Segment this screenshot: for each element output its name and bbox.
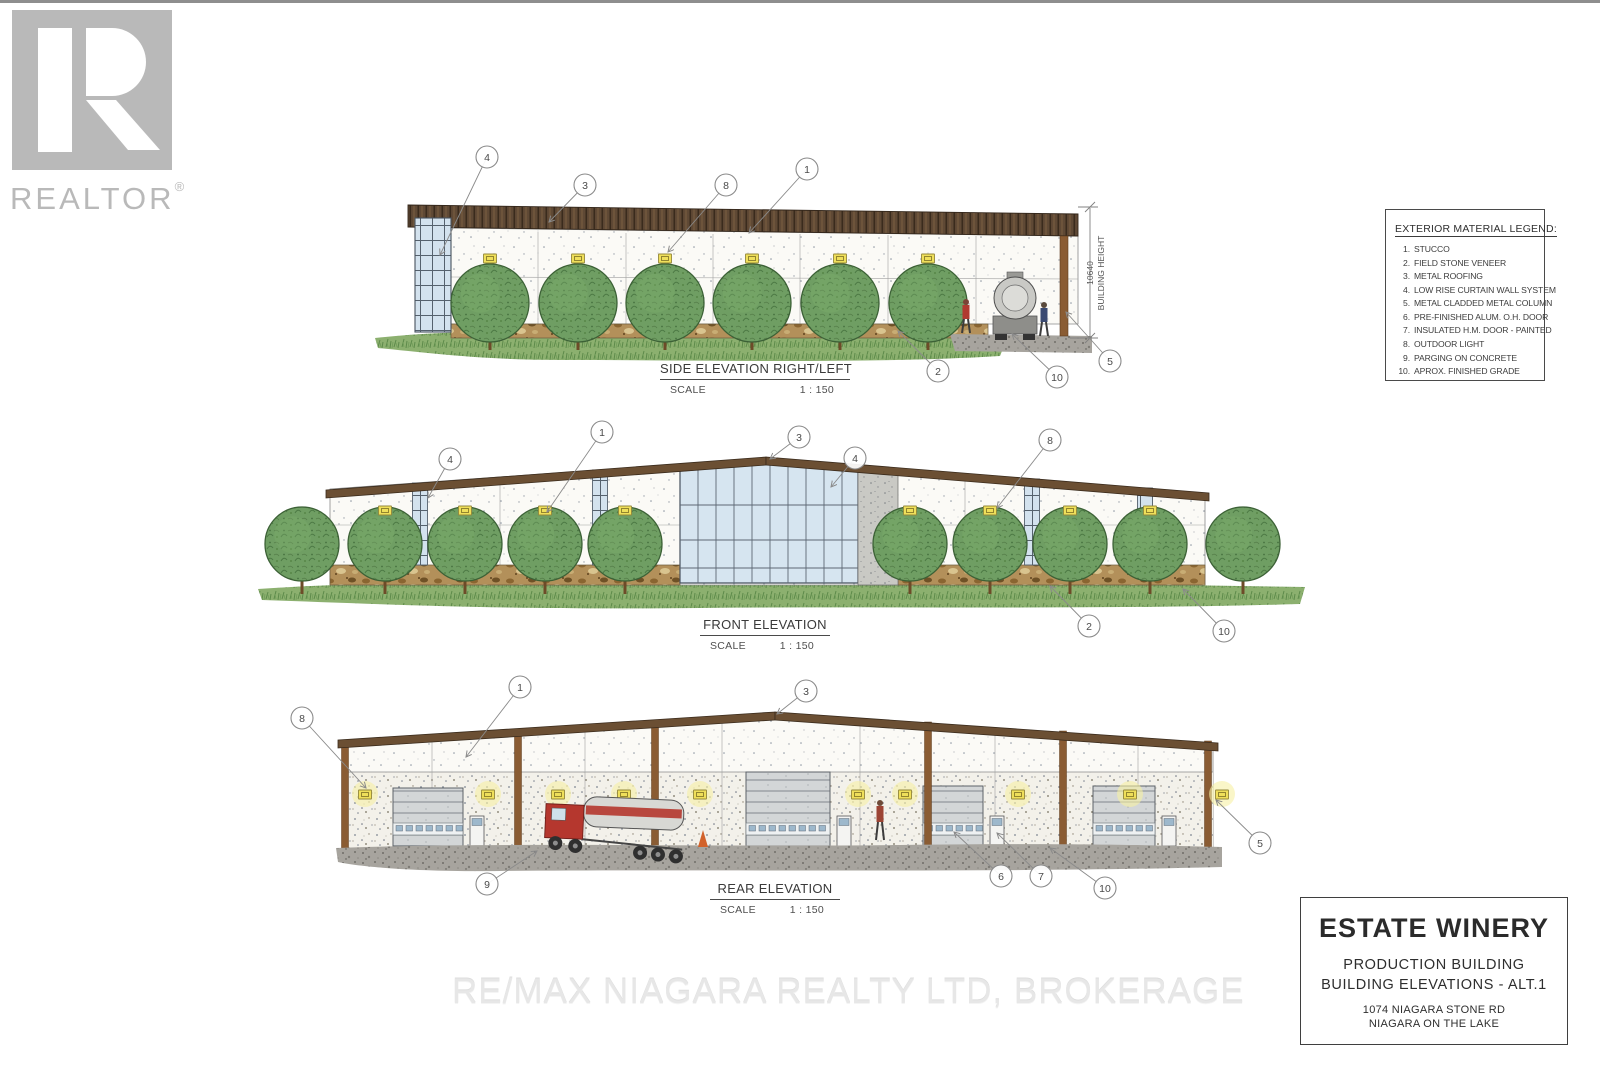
outdoor-light	[539, 506, 552, 515]
front-elevation-drawing: 41348210	[258, 421, 1305, 642]
svg-text:10: 10	[1218, 626, 1230, 638]
rear-elevation-title: REAR ELEVATION	[710, 881, 840, 900]
legend-items: 1.STUCCO2.FIELD STONE VENEER3.METAL ROOF…	[1395, 243, 1537, 379]
scale-value: 1 : 150	[780, 640, 814, 652]
front-elevation-caption: FRONT ELEVATION SCALE 1 : 150	[700, 617, 830, 652]
legend-item-label: PARGING ON CONCRETE	[1414, 352, 1517, 366]
hm-door	[837, 816, 851, 846]
legend-item-label: STUCCO	[1414, 243, 1450, 257]
outdoor-light	[746, 254, 759, 263]
outdoor-light	[619, 506, 632, 515]
svg-text:2: 2	[935, 366, 941, 378]
outdoor-light	[1209, 781, 1235, 807]
curtain-wall-center	[680, 464, 858, 583]
front-elevation-title: FRONT ELEVATION	[700, 617, 830, 636]
legend-item: 10.APROX. FINISHED GRADE	[1395, 365, 1537, 379]
scale-value: 1 : 150	[790, 904, 824, 916]
realtor-wordmark: REALTOR®	[10, 179, 210, 217]
svg-text:6: 6	[998, 871, 1004, 883]
svg-text:10: 10	[1099, 883, 1111, 895]
outdoor-light	[379, 506, 392, 515]
svg-text:9: 9	[484, 879, 490, 891]
legend-item-number: 2.	[1395, 257, 1410, 271]
legend-item-label: INSULATED H.M. DOOR - PAINTED	[1414, 324, 1552, 338]
svg-text:8: 8	[723, 180, 729, 192]
realtor-r-mark	[10, 8, 174, 172]
outdoor-light	[904, 506, 917, 515]
outdoor-light	[475, 781, 501, 807]
callout-3: 3	[770, 426, 810, 459]
rear-elevation-drawing: 813967105	[291, 676, 1271, 899]
legend-item-label: METAL ROOFING	[1414, 270, 1483, 284]
legend-item: 4.LOW RISE CURTAIN WALL SYSTEM	[1395, 284, 1537, 298]
legend-item: 8.OUTDOOR LIGHT	[1395, 338, 1537, 352]
legend-item-number: 5.	[1395, 297, 1410, 311]
outdoor-light	[572, 254, 585, 263]
sheet-subtitle-2: BUILDING ELEVATIONS - ALT.1	[1301, 977, 1567, 993]
side-elevation-title: SIDE ELEVATION RIGHT/LEFT	[660, 361, 850, 380]
outdoor-light	[1005, 781, 1031, 807]
rear-elevation-caption: REAR ELEVATION SCALE 1 : 150	[710, 881, 840, 916]
side-elevation-drawing: 10640 BUILDING HEIGHT 43812105	[375, 146, 1121, 388]
outdoor-light	[659, 254, 672, 263]
legend-item: 7.INSULATED H.M. DOOR - PAINTED	[1395, 324, 1537, 338]
legend-item-number: 6.	[1395, 311, 1410, 325]
legend-item-label: METAL CLADDED METAL COLUMN	[1414, 297, 1552, 311]
legend-item-label: APROX. FINISHED GRADE	[1414, 365, 1520, 379]
outdoor-light	[687, 781, 713, 807]
outdoor-light	[984, 506, 997, 515]
svg-text:8: 8	[1047, 435, 1053, 447]
realtor-logo: REALTOR®	[10, 8, 210, 217]
legend-item: 1.STUCCO	[1395, 243, 1537, 257]
hm-door	[470, 816, 484, 846]
outdoor-light	[922, 254, 935, 263]
legend-item-number: 8.	[1395, 338, 1410, 352]
svg-text:7: 7	[1038, 871, 1044, 883]
outdoor-light	[892, 781, 918, 807]
svg-text:3: 3	[796, 432, 802, 444]
svg-text:8: 8	[299, 713, 305, 725]
address-line-1: 1074 NIAGARA STONE RD	[1301, 1004, 1567, 1016]
outdoor-light	[459, 506, 472, 515]
legend-item-label: LOW RISE CURTAIN WALL SYSTEM	[1414, 284, 1556, 298]
dimension-value: 10640	[1085, 261, 1095, 285]
legend-item-number: 9.	[1395, 352, 1410, 366]
tree	[1206, 507, 1280, 594]
sheet-subtitle-1: PRODUCTION BUILDING	[1301, 957, 1567, 973]
svg-text:10: 10	[1051, 372, 1063, 384]
legend-item-number: 3.	[1395, 270, 1410, 284]
svg-text:1: 1	[599, 427, 605, 439]
outdoor-light	[1144, 506, 1157, 515]
metal-column	[925, 722, 932, 848]
legend-item: 9.PARGING ON CONCRETE	[1395, 352, 1537, 366]
legend-item-label: OUTDOOR LIGHT	[1414, 338, 1484, 352]
svg-text:5: 5	[1257, 838, 1263, 850]
legend-item-label: PRE-FINISHED ALUM. O.H. DOOR	[1414, 311, 1548, 325]
registered-mark: ®	[175, 179, 185, 194]
metal-column	[515, 735, 522, 848]
svg-text:4: 4	[852, 453, 858, 465]
svg-text:1: 1	[804, 164, 810, 176]
scale-value: 1 : 150	[800, 384, 834, 396]
outdoor-light	[1064, 506, 1077, 515]
brokerage-watermark: RE/MAX NIAGARA REALTY LTD, BROKERAGE	[452, 972, 1245, 1012]
curtain-wall-tower	[415, 218, 451, 332]
outdoor-light	[352, 781, 378, 807]
callout-5: 5	[1216, 800, 1271, 854]
metal-column	[1060, 236, 1068, 336]
grass	[258, 582, 1305, 608]
gravel-drive	[950, 334, 1092, 353]
legend-item: 5.METAL CLADDED METAL COLUMN	[1395, 297, 1537, 311]
legend-title: EXTERIOR MATERIAL LEGEND:	[1395, 223, 1557, 237]
title-block: ESTATE WINERY PRODUCTION BUILDING BUILDI…	[1300, 897, 1568, 1045]
outdoor-light	[845, 781, 871, 807]
legend-item: 6.PRE-FINISHED ALUM. O.H. DOOR	[1395, 311, 1537, 325]
side-elevation-caption: SIDE ELEVATION RIGHT/LEFT SCALE 1 : 150	[660, 361, 850, 396]
scale-label: SCALE	[710, 640, 746, 652]
legend-item-number: 7.	[1395, 324, 1410, 338]
outdoor-light	[545, 781, 571, 807]
drawing-sheet: 10640 BUILDING HEIGHT 43812105	[0, 0, 1600, 1068]
legend-item: 3.METAL ROOFING	[1395, 270, 1537, 284]
svg-text:2: 2	[1086, 621, 1092, 633]
address-line-2: NIAGARA ON THE LAKE	[1301, 1018, 1567, 1030]
svg-text:5: 5	[1107, 356, 1113, 368]
dimension-label: BUILDING HEIGHT	[1096, 236, 1106, 311]
legend-item-number: 1.	[1395, 243, 1410, 257]
tree	[265, 507, 339, 594]
scale-label: SCALE	[670, 384, 706, 396]
outdoor-light	[834, 254, 847, 263]
svg-text:3: 3	[803, 686, 809, 698]
legend-item-number: 4.	[1395, 284, 1410, 298]
outdoor-light	[484, 254, 497, 263]
gravel-ground	[336, 844, 1222, 871]
svg-text:3: 3	[582, 180, 588, 192]
svg-text:4: 4	[447, 454, 453, 466]
metal-column	[342, 746, 349, 848]
exterior-material-legend: EXTERIOR MATERIAL LEGEND: 1.STUCCO2.FIEL…	[1385, 209, 1545, 381]
scale-label: SCALE	[720, 904, 756, 916]
outdoor-light	[1117, 781, 1143, 807]
hm-door	[1162, 816, 1176, 846]
hm-door	[990, 816, 1004, 846]
legend-item-label: FIELD STONE VENEER	[1414, 257, 1506, 271]
callout-3: 3	[777, 680, 817, 714]
legend-item-number: 10.	[1395, 365, 1410, 379]
metal-column	[1060, 731, 1067, 848]
svg-text:4: 4	[484, 152, 490, 164]
project-name: ESTATE WINERY	[1301, 913, 1567, 944]
svg-text:1: 1	[517, 682, 523, 694]
legend-item: 2.FIELD STONE VENEER	[1395, 257, 1537, 271]
